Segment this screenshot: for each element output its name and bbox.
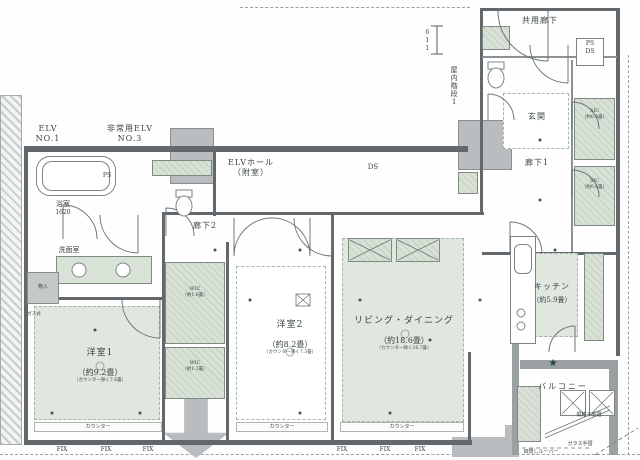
fix-label-2: FIX bbox=[94, 446, 118, 454]
bath-name: 浴室 bbox=[40, 200, 86, 209]
elv1-line2: NO.1 bbox=[26, 134, 70, 144]
balcony-star: ★ bbox=[544, 357, 562, 370]
dim-611-label: 611 bbox=[423, 28, 431, 54]
fix-label-6: FIX bbox=[408, 446, 432, 454]
kitchen-name: キッチン bbox=[522, 282, 582, 292]
elv-hall-line2: （附室） bbox=[213, 168, 289, 178]
bed2-label: 洋室2 （約8.2畳） （カウンター除く7.3畳） bbox=[248, 320, 332, 356]
washroom-label: 洗面室 bbox=[46, 246, 92, 255]
counter-label-3: カウンター bbox=[374, 424, 430, 431]
living-size: （約18.6畳） bbox=[342, 336, 466, 346]
psds-label: PS DS bbox=[577, 40, 603, 57]
elv1-label: ELV NO.1 bbox=[26, 124, 70, 145]
elv3-line1: 非常用ELV bbox=[94, 124, 166, 134]
balcony-label: バルコニー bbox=[538, 382, 588, 392]
bath-label: 浴室 1620 bbox=[40, 200, 86, 217]
living-note: （カウンター除く16.7畳） bbox=[342, 346, 466, 352]
ds-line: DS bbox=[577, 48, 603, 56]
elv1-line1: ELV bbox=[26, 124, 70, 134]
elv3-label: 非常用ELV NO.3 bbox=[94, 124, 166, 145]
sic1-label: SIC （約0.8畳） bbox=[574, 108, 615, 120]
kitchen-label: キッチン （約5.9畳） bbox=[522, 282, 582, 305]
shared-corridor-label: 共用廊下 bbox=[500, 16, 580, 26]
wic2-size: （約1.2畳） bbox=[166, 367, 224, 373]
bath-size: 1620 bbox=[40, 209, 86, 217]
elv-hall-line1: ELVホール bbox=[213, 158, 289, 168]
bed1-name: 洋室1 bbox=[58, 348, 142, 360]
bed2-name: 洋室2 bbox=[248, 320, 332, 332]
bed1-note: （カウンター除く7.6畳） bbox=[58, 378, 142, 384]
sic2-label: SIC （約0.6畳） bbox=[574, 178, 615, 190]
door-arcs bbox=[63, 11, 599, 352]
sic2-size: （約0.6畳） bbox=[574, 185, 615, 191]
ds-label: DS bbox=[360, 163, 386, 172]
bed2-note: （カウンター除く7.3畳） bbox=[248, 350, 332, 356]
louver-label: 目隠しルーバー bbox=[516, 449, 566, 456]
fix-label-4: FIX bbox=[330, 446, 354, 454]
lattice-rail-label: 縦格子手摺 bbox=[566, 412, 612, 419]
wic1-label: WIC （約1.6畳） bbox=[166, 286, 224, 298]
glass-rail-label: ガラス手摺 bbox=[560, 441, 600, 448]
gas-label: ガス式 bbox=[22, 312, 46, 318]
sic1-size: （約0.8畳） bbox=[574, 115, 615, 121]
counter-label-2: カウンター bbox=[254, 424, 310, 431]
storage-label: 物入 bbox=[28, 284, 58, 291]
elv-hall-label: ELVホール （附室） bbox=[213, 158, 289, 179]
bed2-size: （約8.2畳） bbox=[248, 340, 332, 350]
corridor1-label: 廊下1 bbox=[517, 158, 557, 168]
fix-label-1: FIX bbox=[50, 446, 74, 454]
living-label: リビング・ダイニング （約18.6畳） （カウンター除く16.7畳） bbox=[342, 316, 466, 352]
corridor2-label: 廊下2 bbox=[184, 221, 226, 231]
ps-line: PS bbox=[577, 40, 603, 48]
counter-label-1: カウンター bbox=[70, 424, 126, 431]
fix-label-5: FIX bbox=[373, 446, 397, 454]
indoor-stairs-label: 屋内階段1 bbox=[449, 55, 458, 117]
wic1-size: （約1.6畳） bbox=[166, 293, 224, 299]
dimension-611 bbox=[431, 26, 443, 54]
elv3-line2: NO.3 bbox=[94, 134, 166, 144]
bed1-label: 洋室1 （約9.2畳） （カウンター除く7.6畳） bbox=[58, 348, 142, 384]
living-name: リビング・ダイニング bbox=[342, 316, 466, 328]
genkan-label: 玄関 bbox=[519, 112, 555, 122]
ps-small-label: PS bbox=[98, 172, 116, 180]
fix-label-3: FIX bbox=[136, 446, 160, 454]
bed1-size: （約9.2畳） bbox=[58, 368, 142, 378]
floor-plan: 共用廊下 屋内階段1 611 ELV NO.1 非常用ELV NO.3 ELVホ… bbox=[0, 0, 640, 460]
kitchen-size: （約5.9畳） bbox=[522, 296, 582, 305]
wic2-label: WIC （約1.2畳） bbox=[166, 360, 224, 372]
